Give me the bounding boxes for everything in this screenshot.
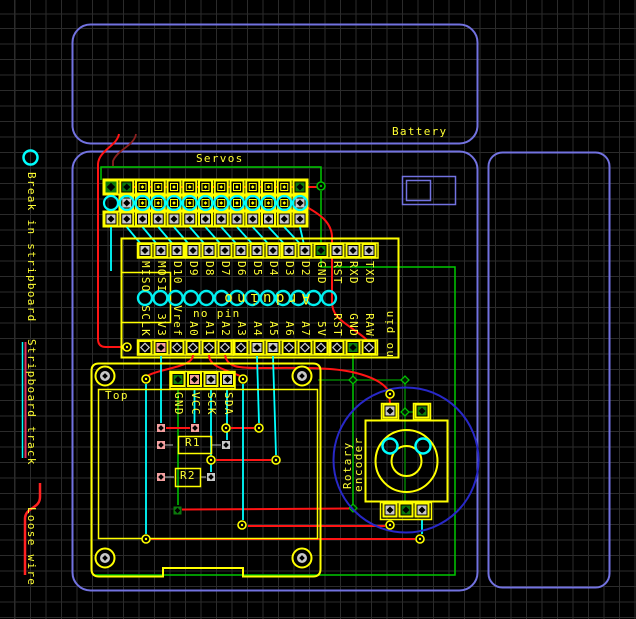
rotary-label-line2: encoder: [354, 437, 364, 492]
arduino-bottom-pad[interactable]: [139, 341, 152, 354]
servo-pad-signal[interactable]: [136, 181, 149, 194]
net-node: [401, 376, 409, 384]
via-pad[interactable]: [123, 343, 131, 351]
servo-pad-gnd[interactable]: [152, 213, 165, 226]
servo-pad-gnd[interactable]: [120, 213, 133, 226]
via-pad[interactable]: [272, 456, 280, 464]
encoder-pad[interactable]: [416, 504, 429, 517]
servo-pad-gnd[interactable]: [231, 213, 244, 226]
encoder-via[interactable]: [386, 521, 394, 529]
pin-label-bottom: A2: [220, 321, 230, 337]
arduino-top-pad[interactable]: [283, 244, 296, 257]
servo-pad-signal[interactable]: [199, 181, 212, 194]
arduino-bottom-pad[interactable]: [155, 341, 168, 354]
pin-label-bottom: A4: [252, 321, 262, 337]
servo-pad-gnd[interactable]: [215, 213, 228, 226]
servo-pad-signal[interactable]: [120, 181, 133, 194]
arduino-top-pad[interactable]: [331, 244, 344, 257]
arduino-top-pad[interactable]: [251, 244, 264, 257]
legend-track-label: Stripboard track: [26, 339, 36, 466]
pin-label-bottom: GND: [348, 313, 358, 337]
arduino-top-pad[interactable]: [155, 244, 168, 257]
arduino-top-pad[interactable]: [267, 244, 280, 257]
via-pad[interactable]: [142, 535, 150, 543]
via-pad[interactable]: [239, 375, 247, 383]
pin-label-bottom: A0: [188, 321, 198, 337]
display-pin-label: SDA: [223, 392, 233, 416]
legend-break-label: Break in stripboard: [26, 172, 36, 323]
arduino-bottom-pad[interactable]: [171, 341, 184, 354]
pin-label-bottom: A1: [204, 321, 214, 337]
gnd-pad[interactable]: [174, 507, 182, 515]
pin-label-bottom: RST: [332, 313, 342, 337]
display-header-pad[interactable]: [188, 373, 201, 386]
servo-pad-signal[interactable]: [105, 181, 118, 194]
arduino-bottom-pads[interactable]: [139, 341, 376, 354]
pin-label-top: RST: [332, 261, 342, 285]
enclosure-outlines: [73, 25, 610, 591]
mounting-hole: [96, 367, 115, 386]
servo-pad-gnd[interactable]: [278, 213, 291, 226]
arduino-bottom-pad[interactable]: [331, 341, 344, 354]
servos-label: Servos: [196, 154, 244, 164]
arduino-top-pad[interactable]: [363, 244, 376, 257]
arduino-bottom-pad[interactable]: [219, 341, 232, 354]
encoder-via[interactable]: [386, 390, 394, 398]
net-node: [349, 376, 357, 384]
display-header-pads[interactable]: [172, 373, 235, 386]
mounting-hole: [96, 549, 115, 568]
pin-label-top: D7: [220, 261, 230, 277]
pin-label-bottom: A7: [300, 321, 310, 337]
display-pin-label: VCC: [190, 392, 200, 416]
pin-label-top: MOSI: [156, 261, 166, 293]
via-pad[interactable]: [255, 424, 263, 432]
pin-label-top: D10: [172, 261, 182, 285]
pin-label-top: D6: [236, 261, 246, 277]
pin-label-bottom: Vref: [172, 305, 182, 337]
servo-pad-signal[interactable]: [294, 181, 307, 194]
servo-pad-signal[interactable]: [278, 181, 291, 194]
encoder-body[interactable]: [366, 404, 448, 520]
via-pad[interactable]: [238, 521, 246, 529]
servo-pad-signal[interactable]: [183, 181, 196, 194]
mounting-hole: [293, 367, 312, 386]
via-pad[interactable]: [142, 375, 150, 383]
battery-positive-wire[interactable]: [98, 134, 121, 347]
arduino-top-pad[interactable]: [219, 244, 232, 257]
pin-label-top: D4: [268, 261, 278, 277]
break-ring-icon: [24, 151, 38, 165]
pin-label-top: D3: [284, 261, 294, 277]
servo-pad-gnd[interactable]: [168, 213, 181, 226]
lid-case-outline: [489, 153, 610, 588]
display-pin-label: GND: [173, 392, 183, 416]
encoder-pad[interactable]: [416, 405, 429, 418]
arduino-top-pad[interactable]: [235, 244, 248, 257]
arduino-bottom-pad[interactable]: [251, 341, 264, 354]
arduino-bottom-pad[interactable]: [267, 341, 280, 354]
switch-cutout-inner: [407, 181, 431, 201]
battery-label: Battery: [392, 127, 447, 137]
arduino-top-pad[interactable]: [171, 244, 184, 257]
servo-pad-gnd[interactable]: [183, 213, 196, 226]
display-header-pad[interactable]: [205, 373, 218, 386]
servo-pad-gnd[interactable]: [246, 213, 259, 226]
r1-label: R1: [185, 438, 201, 448]
pin-label-top: D2: [300, 261, 310, 277]
mounting-hole: [293, 549, 312, 568]
encoder-pad[interactable]: [384, 504, 397, 517]
arduino-top-pad[interactable]: [299, 244, 312, 257]
top-board-label: Top: [105, 391, 129, 401]
encoder-pad[interactable]: [400, 504, 413, 517]
arduino-bottom-pad[interactable]: [203, 341, 216, 354]
servo-pad-signal[interactable]: [231, 181, 244, 194]
pin-label-top: TXD: [364, 261, 374, 285]
component-pad[interactable]: [157, 473, 165, 481]
pin-label-top: RXD: [348, 261, 358, 285]
arduino-top-pads[interactable]: [139, 244, 376, 257]
arduino-top-pad[interactable]: [347, 244, 360, 257]
component-pad[interactable]: [191, 424, 199, 432]
servo-pad-signal[interactable]: [168, 181, 181, 194]
arduino-top-pad[interactable]: [203, 244, 216, 257]
encoder-via[interactable]: [416, 535, 424, 543]
stripboard-break-icon: [104, 196, 118, 210]
arduino-bottom-pad[interactable]: [299, 341, 312, 354]
component-pad[interactable]: [222, 441, 230, 449]
display-pin-label: SCK: [206, 392, 216, 416]
display-header-pad[interactable]: [221, 373, 234, 386]
pin-label-bottom: A6: [284, 321, 294, 337]
via-pad[interactable]: [222, 424, 230, 432]
pin-label-top: D8: [204, 261, 214, 277]
component-pad[interactable]: [157, 441, 165, 449]
pin-label-bottom: A5: [268, 321, 278, 337]
pin-label-top: MISO: [140, 261, 150, 293]
arduino-bottom-pad[interactable]: [235, 341, 248, 354]
net-node: [401, 408, 409, 416]
servo-pad-gnd[interactable]: [136, 213, 149, 226]
servo-pad-signal[interactable]: [215, 181, 228, 194]
servo-pad-signal[interactable]: [246, 181, 259, 194]
encoder-pad[interactable]: [384, 405, 397, 418]
arduino-top-pad[interactable]: [315, 244, 328, 257]
servo-pad-gnd[interactable]: [262, 213, 275, 226]
servo-pad-gnd[interactable]: [105, 213, 118, 226]
pin-label-bottom: A3: [236, 321, 246, 337]
pin-label-top: GND: [316, 261, 326, 285]
pin-label-bottom: 5V: [316, 321, 326, 337]
pin-label-top: D9: [188, 261, 198, 277]
legend-loose-label: Loose wire: [26, 507, 36, 586]
r2-label: R2: [180, 471, 196, 481]
servo-pad-signal[interactable]: [152, 181, 165, 194]
pin-label-bottom: RAW: [364, 313, 374, 337]
servo-pad-signal[interactable]: [262, 181, 275, 194]
component-pad[interactable]: [157, 424, 165, 432]
arduino-top-pad[interactable]: [139, 244, 152, 257]
layout-canvas[interactable]: Battery Servos Top no pin R1 R2 Arduino …: [0, 0, 636, 619]
servo-pad-gnd[interactable]: [294, 213, 307, 226]
pin-label-bottom: 3V3: [156, 313, 166, 337]
arduino-top-pad[interactable]: [187, 244, 200, 257]
servo-gnd-via[interactable]: [317, 182, 325, 190]
via-pad[interactable]: [207, 456, 215, 464]
arduino-bottom-pad[interactable]: [187, 341, 200, 354]
arduino-bottom-pad[interactable]: [347, 341, 360, 354]
arduino-label: Arduino: [214, 290, 316, 306]
arduino-bottom-pad[interactable]: [315, 341, 328, 354]
no-pin-label-horizontal: no pin: [193, 309, 241, 319]
pin-label-bottom: SCLK: [140, 305, 150, 337]
no-pin-label-vertical: no pin: [385, 309, 395, 357]
servo-pad-gnd[interactable]: [199, 213, 212, 226]
arduino-bottom-pad[interactable]: [283, 341, 296, 354]
display-header-pad[interactable]: [172, 373, 185, 386]
arduino-bottom-pad[interactable]: [363, 341, 376, 354]
pin-label-top: D5: [252, 261, 262, 277]
component-pad[interactable]: [207, 473, 215, 481]
